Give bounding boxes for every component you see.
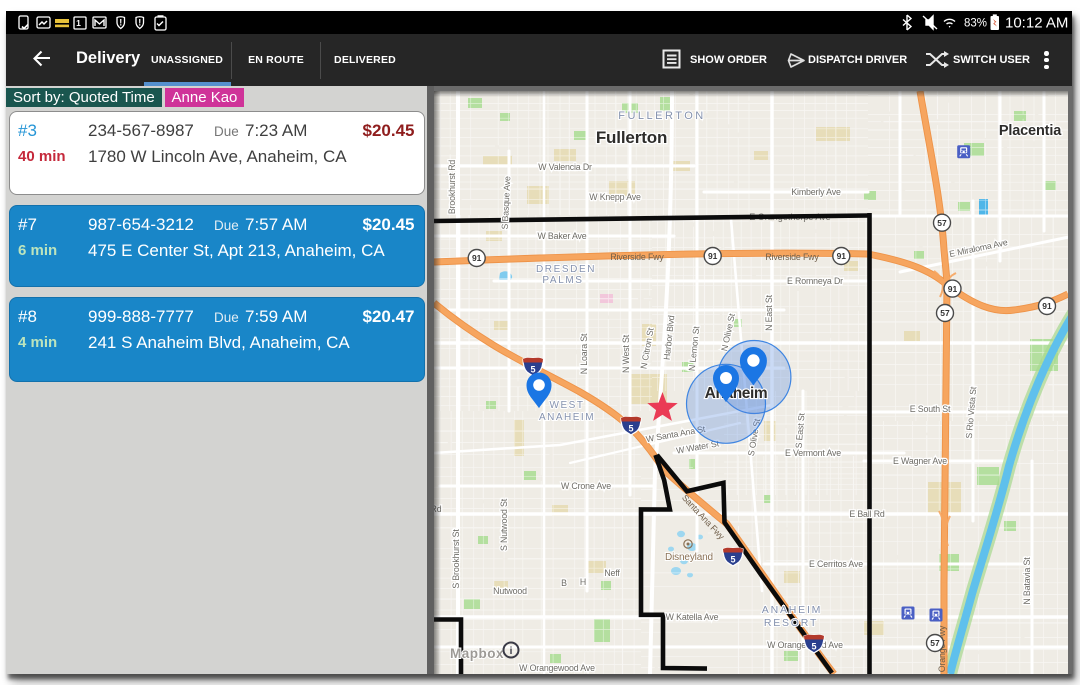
svg-text:Brookhurst Rd: Brookhurst Rd	[447, 160, 457, 215]
svg-text:5: 5	[530, 365, 535, 375]
svg-text:91: 91	[837, 251, 847, 261]
svg-text:E Romneya Dr: E Romneya Dr	[787, 276, 843, 286]
svg-text:E Cerritos Ave: E Cerritos Ave	[809, 559, 863, 569]
svg-text:83%: 83%	[964, 18, 987, 30]
svg-text:B: B	[561, 578, 567, 588]
svg-text:FULLERTON: FULLERTON	[618, 110, 706, 122]
svg-text:Riverside Fwy: Riverside Fwy	[765, 252, 819, 262]
svg-text:1: 1	[76, 18, 81, 28]
svg-text:E Vermont Ave: E Vermont Ave	[785, 448, 841, 458]
svg-text:E Ball Rd: E Ball Rd	[849, 509, 885, 519]
svg-text:57: 57	[937, 218, 947, 228]
svg-text:RESORT: RESORT	[764, 617, 818, 629]
svg-text:PALMS: PALMS	[542, 275, 583, 286]
svg-text:5: 5	[811, 642, 816, 652]
svg-text:Kimberly Ave: Kimberly Ave	[791, 187, 841, 197]
svg-text:91: 91	[948, 284, 958, 294]
svg-text:E Wagner Ave: E Wagner Ave	[893, 456, 947, 466]
svg-text:!: !	[119, 18, 122, 28]
svg-text:5: 5	[628, 424, 633, 434]
svg-text:DRESDEN: DRESDEN	[536, 264, 596, 275]
svg-text:W Orangewood Ave: W Orangewood Ave	[519, 663, 595, 673]
svg-text:N Batavia St: N Batavia St	[1022, 557, 1032, 605]
svg-text:Riverside Fwy: Riverside Fwy	[610, 252, 664, 262]
svg-text:W Baker Ave: W Baker Ave	[537, 231, 586, 241]
svg-text:N West St: N West St	[621, 334, 631, 373]
svg-text:W Knepp Ave: W Knepp Ave	[589, 192, 641, 202]
svg-text:57: 57	[930, 638, 940, 648]
svg-text:ANAHEIM: ANAHEIM	[539, 412, 595, 423]
svg-text:H: H	[580, 577, 586, 587]
svg-text:S Nutwood St: S Nutwood St	[499, 498, 509, 551]
svg-text:91: 91	[472, 253, 482, 263]
svg-text:Disneyland: Disneyland	[665, 552, 713, 563]
svg-text:S Brookhurst St: S Brookhurst St	[451, 529, 461, 589]
svg-text:91: 91	[708, 251, 718, 261]
svg-text:!: !	[138, 18, 141, 28]
svg-text:91: 91	[1042, 301, 1052, 311]
svg-text:Fullerton: Fullerton	[596, 128, 667, 147]
svg-text:W Valencia Dr: W Valencia Dr	[538, 162, 592, 172]
svg-text:10:12 AM: 10:12 AM	[1005, 15, 1068, 32]
svg-text:Neff: Neff	[604, 568, 620, 578]
svg-text:Nutwood: Nutwood	[493, 586, 527, 596]
svg-text:5: 5	[730, 555, 735, 565]
svg-text:WEST: WEST	[550, 400, 585, 411]
svg-text:Placentia: Placentia	[999, 123, 1062, 139]
svg-text:N East St: N East St	[764, 294, 774, 331]
svg-text:W Crone Ave: W Crone Ave	[561, 481, 611, 491]
svg-text:N Loara St: N Loara St	[579, 333, 589, 374]
svg-text:E South St: E South St	[910, 404, 951, 414]
svg-text:57: 57	[940, 308, 950, 318]
svg-text:ANAHEIM: ANAHEIM	[762, 604, 822, 616]
svg-text:W Katella Ave: W Katella Ave	[666, 612, 719, 622]
svg-text:Mapbox: Mapbox	[450, 646, 504, 661]
svg-text:i: i	[510, 646, 513, 657]
